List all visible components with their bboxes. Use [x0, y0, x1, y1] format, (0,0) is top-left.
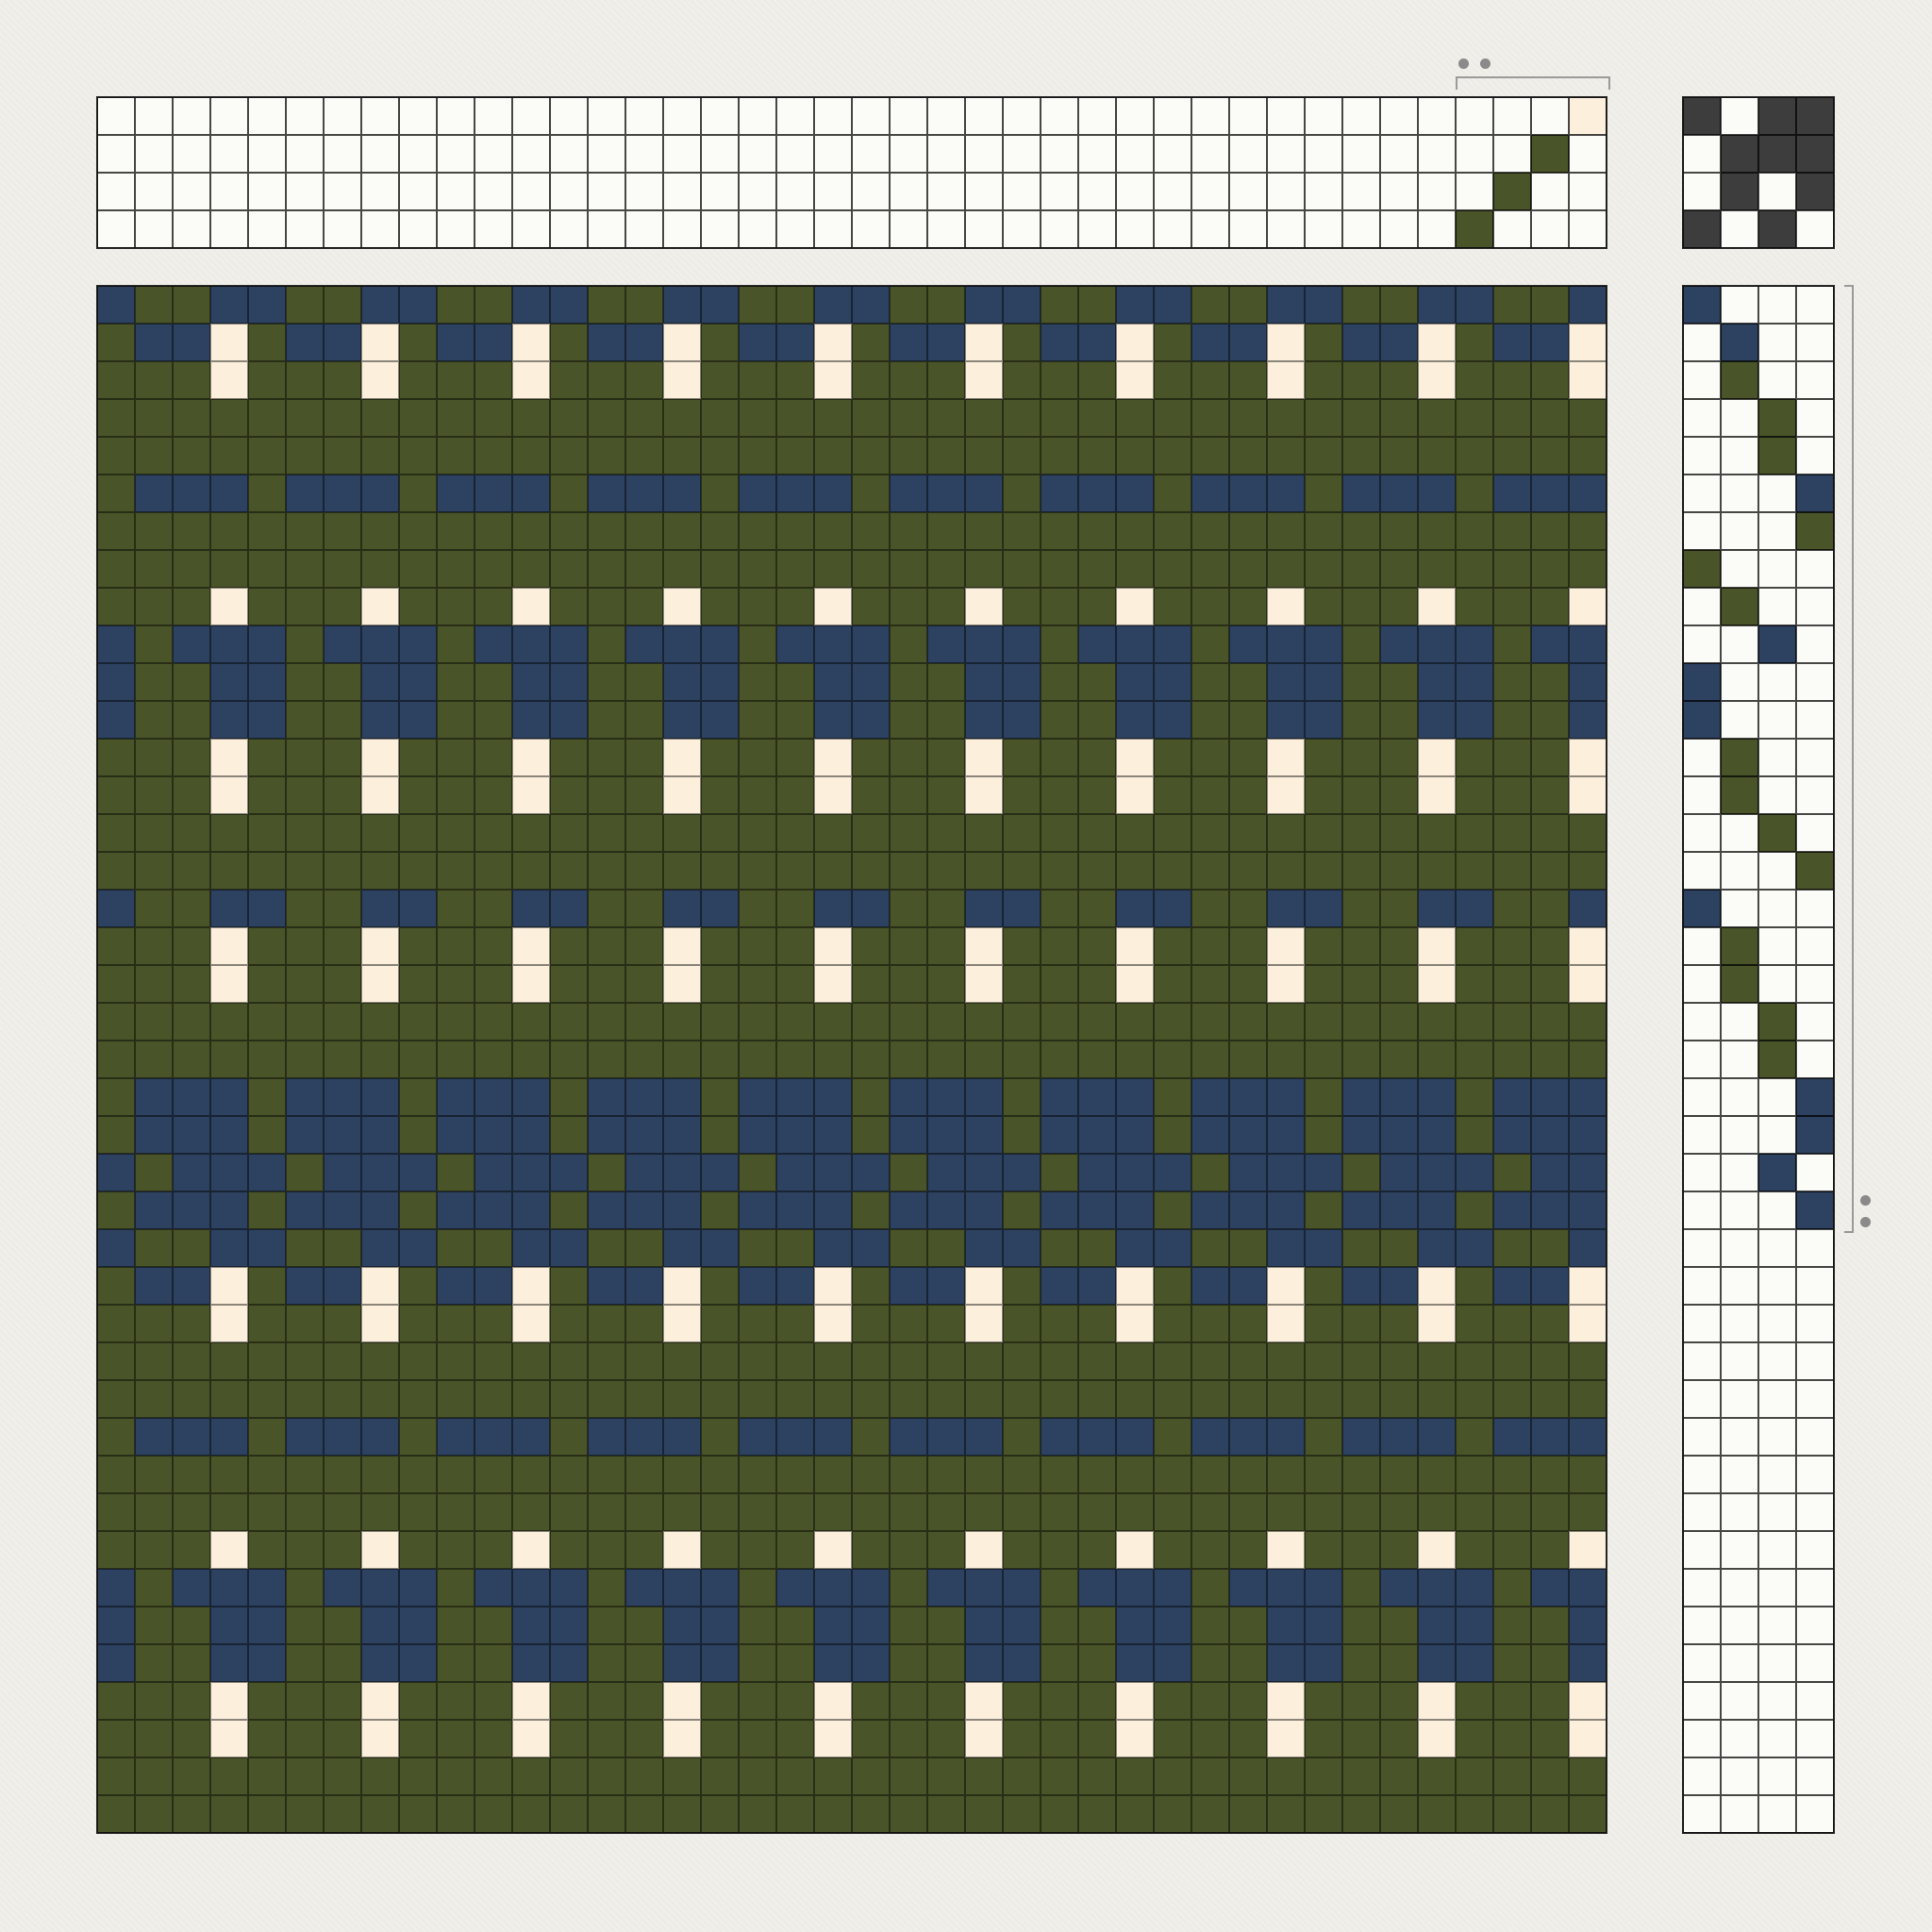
threading-cell[interactable] — [927, 210, 965, 248]
treadling-cell[interactable] — [1683, 1607, 1721, 1644]
threading-cell[interactable] — [1493, 97, 1531, 135]
threading-cell[interactable] — [1305, 173, 1342, 210]
treadling-cell[interactable] — [1796, 625, 1834, 663]
treadling-cell[interactable] — [1683, 1720, 1721, 1757]
tieup-cell[interactable] — [1796, 135, 1834, 173]
threading-cell[interactable] — [701, 210, 739, 248]
threading-cell[interactable] — [1003, 210, 1041, 248]
treadling-cell[interactable] — [1721, 1795, 1758, 1833]
threading-cell[interactable] — [399, 173, 437, 210]
treadling-cell[interactable] — [1683, 1342, 1721, 1380]
threading-cell[interactable] — [927, 173, 965, 210]
treadling-cell[interactable] — [1796, 1757, 1834, 1795]
treadling-cell[interactable] — [1721, 1041, 1758, 1078]
threading-cell[interactable] — [399, 135, 437, 173]
treadling-cell[interactable] — [1721, 1380, 1758, 1418]
threading-cell[interactable] — [210, 173, 248, 210]
threading-cell[interactable] — [1003, 173, 1041, 210]
threading-cell[interactable] — [1191, 135, 1229, 173]
threading-cell[interactable] — [701, 135, 739, 173]
treadling-cell[interactable] — [1683, 701, 1721, 739]
tieup-cell[interactable] — [1758, 173, 1796, 210]
threading-cell[interactable] — [248, 97, 286, 135]
treadling-cell[interactable] — [1758, 1795, 1796, 1833]
treadling-cell[interactable] — [1683, 663, 1721, 701]
threading-cell[interactable] — [1154, 97, 1191, 135]
treadling-cell[interactable] — [1758, 1607, 1796, 1644]
treadling-cell[interactable] — [1796, 1267, 1834, 1305]
treadling-cell[interactable] — [1796, 1569, 1834, 1607]
treadling-cell[interactable] — [1796, 1531, 1834, 1569]
threading-cell[interactable] — [1418, 210, 1456, 248]
treadling-cell[interactable] — [1721, 1456, 1758, 1493]
treadling-cell[interactable] — [1796, 927, 1834, 965]
treadling-cell[interactable] — [1683, 1041, 1721, 1078]
tieup-cell[interactable] — [1683, 173, 1721, 210]
threading-cell[interactable] — [1380, 210, 1418, 248]
threading-cell[interactable] — [173, 210, 210, 248]
threading-cell[interactable] — [1380, 135, 1418, 173]
treadling-cell[interactable] — [1721, 512, 1758, 550]
treadling-cell[interactable] — [1683, 550, 1721, 588]
treadling-cell[interactable] — [1758, 286, 1796, 324]
treadling-cell[interactable] — [1721, 852, 1758, 890]
tieup-cell[interactable] — [1758, 97, 1796, 135]
threading-cell[interactable] — [927, 97, 965, 135]
treadling-cell[interactable] — [1721, 965, 1758, 1003]
threading-cell[interactable] — [814, 97, 852, 135]
treadling-cell[interactable] — [1721, 1078, 1758, 1116]
treadling-cell[interactable] — [1758, 437, 1796, 475]
treadling-cell[interactable] — [1796, 663, 1834, 701]
treadling-cell[interactable] — [1683, 1531, 1721, 1569]
treadling-cell[interactable] — [1683, 512, 1721, 550]
threading-cell[interactable] — [1531, 97, 1569, 135]
threading-cell[interactable] — [437, 97, 475, 135]
threading-cell[interactable] — [776, 97, 814, 135]
treadling-cell[interactable] — [1758, 1757, 1796, 1795]
treadling-cell[interactable] — [1796, 1342, 1834, 1380]
threading-cell[interactable] — [890, 210, 927, 248]
treadling-cell[interactable] — [1683, 814, 1721, 852]
treadling-cell[interactable] — [1683, 1418, 1721, 1456]
threading-cell[interactable] — [1191, 97, 1229, 135]
treadling-cell[interactable] — [1683, 475, 1721, 512]
treadling-cell[interactable] — [1796, 776, 1834, 814]
treadling-cell[interactable] — [1721, 1644, 1758, 1682]
treadling-cell[interactable] — [1721, 1757, 1758, 1795]
threading-repeat-handle[interactable] — [1458, 58, 1491, 69]
treadling-cell[interactable] — [1758, 1531, 1796, 1569]
threading-cell[interactable] — [1305, 135, 1342, 173]
threading-cell[interactable] — [739, 135, 776, 173]
treadling-cell[interactable] — [1721, 1720, 1758, 1757]
treadling-cell[interactable] — [1758, 739, 1796, 776]
threading-cell[interactable] — [625, 97, 663, 135]
treadling-cell[interactable] — [1758, 1154, 1796, 1191]
treadling-cell[interactable] — [1683, 1191, 1721, 1229]
threading-cell[interactable] — [663, 173, 701, 210]
threading-cell[interactable] — [437, 173, 475, 210]
treadling-cell[interactable] — [1683, 1380, 1721, 1418]
threading-cell[interactable] — [663, 135, 701, 173]
threading-cell[interactable] — [1569, 135, 1607, 173]
treadling-cell[interactable] — [1721, 1116, 1758, 1154]
treadling-cell[interactable] — [1721, 1569, 1758, 1607]
threading-cell[interactable] — [776, 135, 814, 173]
treadling-cell[interactable] — [1796, 965, 1834, 1003]
treadling-cell[interactable] — [1721, 814, 1758, 852]
treadling-cell[interactable] — [1758, 399, 1796, 437]
treadling-cell[interactable] — [1683, 1154, 1721, 1191]
threading-cell[interactable] — [1305, 210, 1342, 248]
threading-cell[interactable] — [1003, 135, 1041, 173]
treadling-cell[interactable] — [1721, 437, 1758, 475]
threading-cell[interactable] — [625, 135, 663, 173]
threading-cell[interactable] — [286, 135, 324, 173]
treadling-cell[interactable] — [1796, 1493, 1834, 1531]
tieup-cell[interactable] — [1758, 135, 1796, 173]
treadling-cell[interactable] — [1796, 361, 1834, 399]
threading-cell[interactable] — [399, 210, 437, 248]
treadling-cell[interactable] — [1796, 1682, 1834, 1720]
treadling-cell[interactable] — [1796, 852, 1834, 890]
tieup-cell[interactable] — [1758, 210, 1796, 248]
treadling-cell[interactable] — [1758, 852, 1796, 890]
treadling-cell[interactable] — [1796, 1380, 1834, 1418]
treadling-cell[interactable] — [1796, 1003, 1834, 1041]
treadling-cell[interactable] — [1758, 1569, 1796, 1607]
treadling-cell[interactable] — [1796, 1305, 1834, 1342]
threading-cell[interactable] — [324, 135, 361, 173]
tieup-grid[interactable] — [1683, 97, 1834, 248]
treadling-cell[interactable] — [1758, 1380, 1796, 1418]
threading-cell[interactable] — [1456, 135, 1493, 173]
treadling-cell[interactable] — [1683, 588, 1721, 625]
tieup-cell[interactable] — [1796, 210, 1834, 248]
threading-cell[interactable] — [550, 97, 588, 135]
threading-cell[interactable] — [475, 173, 512, 210]
threading-cell[interactable] — [1003, 97, 1041, 135]
threading-cell[interactable] — [1154, 210, 1191, 248]
treadling-cell[interactable] — [1683, 890, 1721, 927]
threading-cell[interactable] — [1569, 210, 1607, 248]
threading-cell[interactable] — [135, 135, 173, 173]
threading-cell[interactable] — [776, 173, 814, 210]
threading-cell[interactable] — [1418, 135, 1456, 173]
treadling-cell[interactable] — [1796, 814, 1834, 852]
threading-cell[interactable] — [361, 210, 399, 248]
threading-cell[interactable] — [173, 173, 210, 210]
threading-cell[interactable] — [210, 210, 248, 248]
threading-cell[interactable] — [399, 97, 437, 135]
treadling-grid[interactable] — [1683, 286, 1834, 1833]
threading-cell[interactable] — [512, 210, 550, 248]
treadling-cell[interactable] — [1796, 1229, 1834, 1267]
treadling-cell[interactable] — [1721, 663, 1758, 701]
treadling-cell[interactable] — [1721, 1682, 1758, 1720]
tieup-cell[interactable] — [1683, 210, 1721, 248]
treadling-cell[interactable] — [1758, 1116, 1796, 1154]
threading-cell[interactable] — [210, 97, 248, 135]
threading-cell[interactable] — [814, 210, 852, 248]
threading-cell[interactable] — [248, 135, 286, 173]
threading-cell[interactable] — [1569, 173, 1607, 210]
treadling-cell[interactable] — [1796, 1078, 1834, 1116]
treadling-cell[interactable] — [1796, 701, 1834, 739]
threading-cell[interactable] — [1229, 97, 1267, 135]
treadling-cell[interactable] — [1721, 890, 1758, 927]
treadling-cell[interactable] — [1758, 1003, 1796, 1041]
threading-cell[interactable] — [550, 210, 588, 248]
threading-cell[interactable] — [437, 135, 475, 173]
treadling-cell[interactable] — [1683, 1456, 1721, 1493]
threading-cell[interactable] — [1116, 97, 1154, 135]
treadling-cell[interactable] — [1721, 399, 1758, 437]
threading-cell[interactable] — [1154, 173, 1191, 210]
threading-cell[interactable] — [1267, 135, 1305, 173]
treadling-cell[interactable] — [1758, 1644, 1796, 1682]
threading-cell[interactable] — [1305, 97, 1342, 135]
threading-cell[interactable] — [512, 97, 550, 135]
treadling-cell[interactable] — [1758, 1267, 1796, 1305]
treadling-cell[interactable] — [1758, 965, 1796, 1003]
threading-cell[interactable] — [739, 97, 776, 135]
tieup-cell[interactable] — [1721, 97, 1758, 135]
treadling-cell[interactable] — [1683, 1003, 1721, 1041]
treadling-cell[interactable] — [1758, 1342, 1796, 1380]
tieup-cell[interactable] — [1721, 173, 1758, 210]
treadling-cell[interactable] — [1683, 1493, 1721, 1531]
threading-cell[interactable] — [1342, 210, 1380, 248]
treadling-cell[interactable] — [1683, 965, 1721, 1003]
treadling-cell[interactable] — [1721, 286, 1758, 324]
threading-cell[interactable] — [1380, 173, 1418, 210]
threading-cell[interactable] — [1267, 97, 1305, 135]
treadling-cell[interactable] — [1796, 890, 1834, 927]
treadling-cell[interactable] — [1683, 776, 1721, 814]
threading-cell[interactable] — [1154, 135, 1191, 173]
threading-cell[interactable] — [588, 210, 625, 248]
threading-cell[interactable] — [361, 97, 399, 135]
threading-cell[interactable] — [248, 173, 286, 210]
threading-cell[interactable] — [97, 210, 135, 248]
threading-cell[interactable] — [663, 210, 701, 248]
threading-cell[interactable] — [324, 173, 361, 210]
treadling-cell[interactable] — [1796, 1720, 1834, 1757]
threading-cell[interactable] — [1456, 173, 1493, 210]
threading-cell[interactable] — [512, 135, 550, 173]
treadling-cell[interactable] — [1758, 1418, 1796, 1456]
treadling-cell[interactable] — [1758, 890, 1796, 927]
treadling-cell[interactable] — [1721, 1229, 1758, 1267]
threading-cell[interactable] — [1456, 210, 1493, 248]
tieup-cell[interactable] — [1796, 173, 1834, 210]
threading-cell[interactable] — [550, 135, 588, 173]
threading-cell[interactable] — [97, 97, 135, 135]
threading-cell[interactable] — [286, 210, 324, 248]
treadling-cell[interactable] — [1721, 324, 1758, 361]
threading-cell[interactable] — [361, 173, 399, 210]
threading-cell[interactable] — [135, 97, 173, 135]
treadling-cell[interactable] — [1683, 1795, 1721, 1833]
threading-cell[interactable] — [1418, 173, 1456, 210]
treadling-cell[interactable] — [1796, 399, 1834, 437]
treadling-cell[interactable] — [1683, 852, 1721, 890]
threading-cell[interactable] — [173, 135, 210, 173]
threading-cell[interactable] — [852, 135, 890, 173]
threading-cell[interactable] — [776, 210, 814, 248]
threading-cell[interactable] — [475, 97, 512, 135]
threading-cell[interactable] — [588, 135, 625, 173]
treadling-cell[interactable] — [1758, 512, 1796, 550]
threading-cell[interactable] — [97, 135, 135, 173]
threading-cell[interactable] — [814, 173, 852, 210]
treadling-cell[interactable] — [1721, 475, 1758, 512]
treadling-cell[interactable] — [1683, 1757, 1721, 1795]
threading-cell[interactable] — [890, 135, 927, 173]
treadling-cell[interactable] — [1721, 1191, 1758, 1229]
threading-cell[interactable] — [1191, 173, 1229, 210]
treadling-cell[interactable] — [1721, 1493, 1758, 1531]
threading-cell[interactable] — [1342, 135, 1380, 173]
threading-cell[interactable] — [1041, 210, 1078, 248]
threading-cell[interactable] — [1078, 135, 1116, 173]
threading-cell[interactable] — [1418, 97, 1456, 135]
threading-cell[interactable] — [927, 135, 965, 173]
threading-cell[interactable] — [135, 173, 173, 210]
threading-cell[interactable] — [852, 97, 890, 135]
treadling-cell[interactable] — [1721, 701, 1758, 739]
threading-cell[interactable] — [1267, 173, 1305, 210]
treadling-cell[interactable] — [1758, 588, 1796, 625]
treadling-cell[interactable] — [1758, 1493, 1796, 1531]
threading-cell[interactable] — [814, 135, 852, 173]
treadling-cell[interactable] — [1721, 1267, 1758, 1305]
threading-cell[interactable] — [852, 210, 890, 248]
treadling-cell[interactable] — [1683, 1569, 1721, 1607]
threading-cell[interactable] — [475, 135, 512, 173]
threading-cell[interactable] — [1531, 210, 1569, 248]
threading-cell[interactable] — [1380, 97, 1418, 135]
threading-cell[interactable] — [210, 135, 248, 173]
threading-cell[interactable] — [512, 173, 550, 210]
treadling-cell[interactable] — [1683, 361, 1721, 399]
treadling-cell[interactable] — [1683, 286, 1721, 324]
threading-cell[interactable] — [1116, 210, 1154, 248]
threading-cell[interactable] — [701, 173, 739, 210]
treadling-cell[interactable] — [1683, 324, 1721, 361]
treadling-cell[interactable] — [1683, 1116, 1721, 1154]
threading-cell[interactable] — [965, 97, 1003, 135]
treadling-cell[interactable] — [1683, 739, 1721, 776]
treadling-cell[interactable] — [1721, 1003, 1758, 1041]
treadling-cell[interactable] — [1721, 776, 1758, 814]
treadling-cell[interactable] — [1758, 814, 1796, 852]
treadling-cell[interactable] — [1758, 625, 1796, 663]
treadling-cell[interactable] — [1758, 1229, 1796, 1267]
tieup-cell[interactable] — [1721, 135, 1758, 173]
threading-cell[interactable] — [1041, 97, 1078, 135]
threading-cell[interactable] — [701, 97, 739, 135]
threading-cell[interactable] — [965, 173, 1003, 210]
threading-cell[interactable] — [286, 173, 324, 210]
treadling-cell[interactable] — [1721, 739, 1758, 776]
threading-cell[interactable] — [437, 210, 475, 248]
treadling-cell[interactable] — [1796, 437, 1834, 475]
treadling-cell[interactable] — [1721, 927, 1758, 965]
threading-cell[interactable] — [286, 97, 324, 135]
treadling-cell[interactable] — [1683, 437, 1721, 475]
threading-cell[interactable] — [475, 210, 512, 248]
treadling-cell[interactable] — [1721, 588, 1758, 625]
threading-cell[interactable] — [550, 173, 588, 210]
treadling-cell[interactable] — [1683, 1305, 1721, 1342]
tieup-cell[interactable] — [1796, 97, 1834, 135]
threading-cell[interactable] — [361, 135, 399, 173]
threading-cell[interactable] — [1229, 135, 1267, 173]
threading-cell[interactable] — [588, 97, 625, 135]
treadling-cell[interactable] — [1758, 1720, 1796, 1757]
treadling-cell[interactable] — [1721, 1418, 1758, 1456]
treadling-cell[interactable] — [1683, 625, 1721, 663]
treadling-cell[interactable] — [1796, 550, 1834, 588]
treadling-cell[interactable] — [1758, 1191, 1796, 1229]
treadling-repeat-handle[interactable] — [1860, 1195, 1871, 1227]
threading-cell[interactable] — [1041, 135, 1078, 173]
treadling-cell[interactable] — [1758, 701, 1796, 739]
threading-grid[interactable] — [97, 97, 1607, 248]
treadling-cell[interactable] — [1721, 361, 1758, 399]
threading-cell[interactable] — [1116, 173, 1154, 210]
tieup-cell[interactable] — [1721, 210, 1758, 248]
treadling-cell[interactable] — [1796, 1418, 1834, 1456]
threading-cell[interactable] — [1267, 210, 1305, 248]
treadling-cell[interactable] — [1758, 475, 1796, 512]
treadling-cell[interactable] — [1796, 512, 1834, 550]
treadling-cell[interactable] — [1796, 1041, 1834, 1078]
threading-cell[interactable] — [97, 173, 135, 210]
threading-cell[interactable] — [1078, 210, 1116, 248]
treadling-cell[interactable] — [1796, 1154, 1834, 1191]
treadling-cell[interactable] — [1721, 625, 1758, 663]
tieup-cell[interactable] — [1683, 135, 1721, 173]
threading-cell[interactable] — [1342, 97, 1380, 135]
threading-cell[interactable] — [890, 173, 927, 210]
treadling-cell[interactable] — [1683, 1267, 1721, 1305]
threading-cell[interactable] — [739, 210, 776, 248]
threading-cell[interactable] — [1493, 173, 1531, 210]
treadling-cell[interactable] — [1721, 1531, 1758, 1569]
threading-cell[interactable] — [1229, 210, 1267, 248]
treadling-cell[interactable] — [1758, 361, 1796, 399]
threading-cell[interactable] — [1531, 173, 1569, 210]
treadling-cell[interactable] — [1758, 324, 1796, 361]
threading-cell[interactable] — [965, 210, 1003, 248]
treadling-cell[interactable] — [1796, 1795, 1834, 1833]
treadling-cell[interactable] — [1683, 1682, 1721, 1720]
treadling-cell[interactable] — [1721, 550, 1758, 588]
treadling-cell[interactable] — [1758, 550, 1796, 588]
treadling-cell[interactable] — [1758, 927, 1796, 965]
treadling-cell[interactable] — [1721, 1305, 1758, 1342]
treadling-cell[interactable] — [1683, 927, 1721, 965]
threading-cell[interactable] — [1041, 173, 1078, 210]
treadling-cell[interactable] — [1796, 1456, 1834, 1493]
treadling-cell[interactable] — [1796, 1644, 1834, 1682]
treadling-cell[interactable] — [1796, 1191, 1834, 1229]
threading-cell[interactable] — [588, 173, 625, 210]
